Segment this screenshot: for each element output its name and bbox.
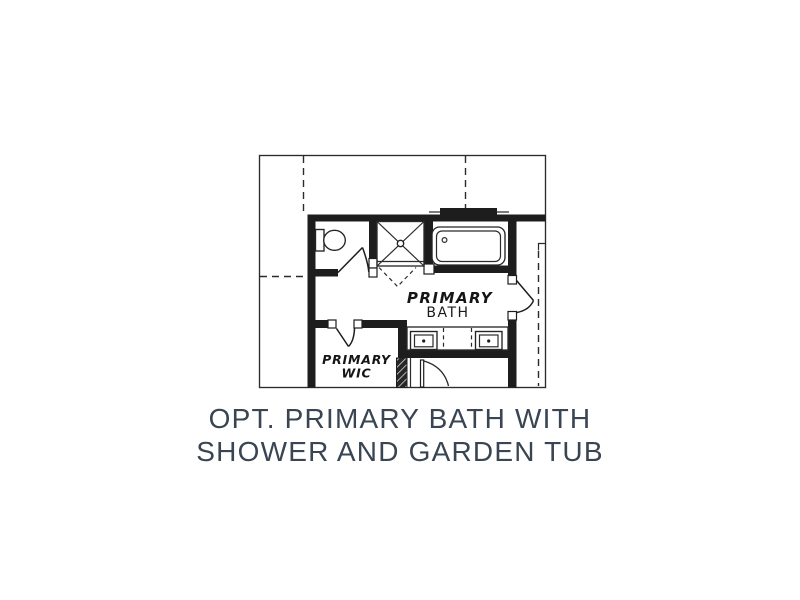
room-labels: PRIMARY BATH PRIMARY WIC xyxy=(322,289,494,381)
shower-door-swing xyxy=(379,268,416,287)
floor-plan-page: PRIMARY BATH PRIMARY WIC OPT. PRIMARY BA… xyxy=(0,0,800,600)
toilet xyxy=(316,230,346,252)
caption-line-2: SHOWER AND GARDEN TUB xyxy=(0,435,800,468)
wic-label-line2: WIC xyxy=(341,366,371,381)
vanity-sink-right xyxy=(476,332,503,350)
bath-entry-door xyxy=(517,281,534,313)
toilet-room-door xyxy=(338,248,369,273)
plan-caption: OPT. PRIMARY BATH WITH SHOWER AND GARDEN… xyxy=(0,402,800,468)
vanity-sink-left xyxy=(411,332,438,350)
hatched-wall-post xyxy=(397,358,408,388)
bath-label-line2: BATH xyxy=(426,305,469,321)
caption-line-1: OPT. PRIMARY BATH WITH xyxy=(0,402,800,435)
shower xyxy=(377,222,424,287)
floor-plan-drawing: PRIMARY BATH PRIMARY WIC xyxy=(0,0,800,600)
hall-door xyxy=(411,358,449,387)
toilet-bowl xyxy=(324,230,346,250)
toilet-tank xyxy=(316,230,325,252)
double-sink-vanity xyxy=(407,327,508,350)
window-over-tub xyxy=(429,208,509,215)
garden-tub xyxy=(432,227,505,265)
wic-door xyxy=(337,329,355,347)
